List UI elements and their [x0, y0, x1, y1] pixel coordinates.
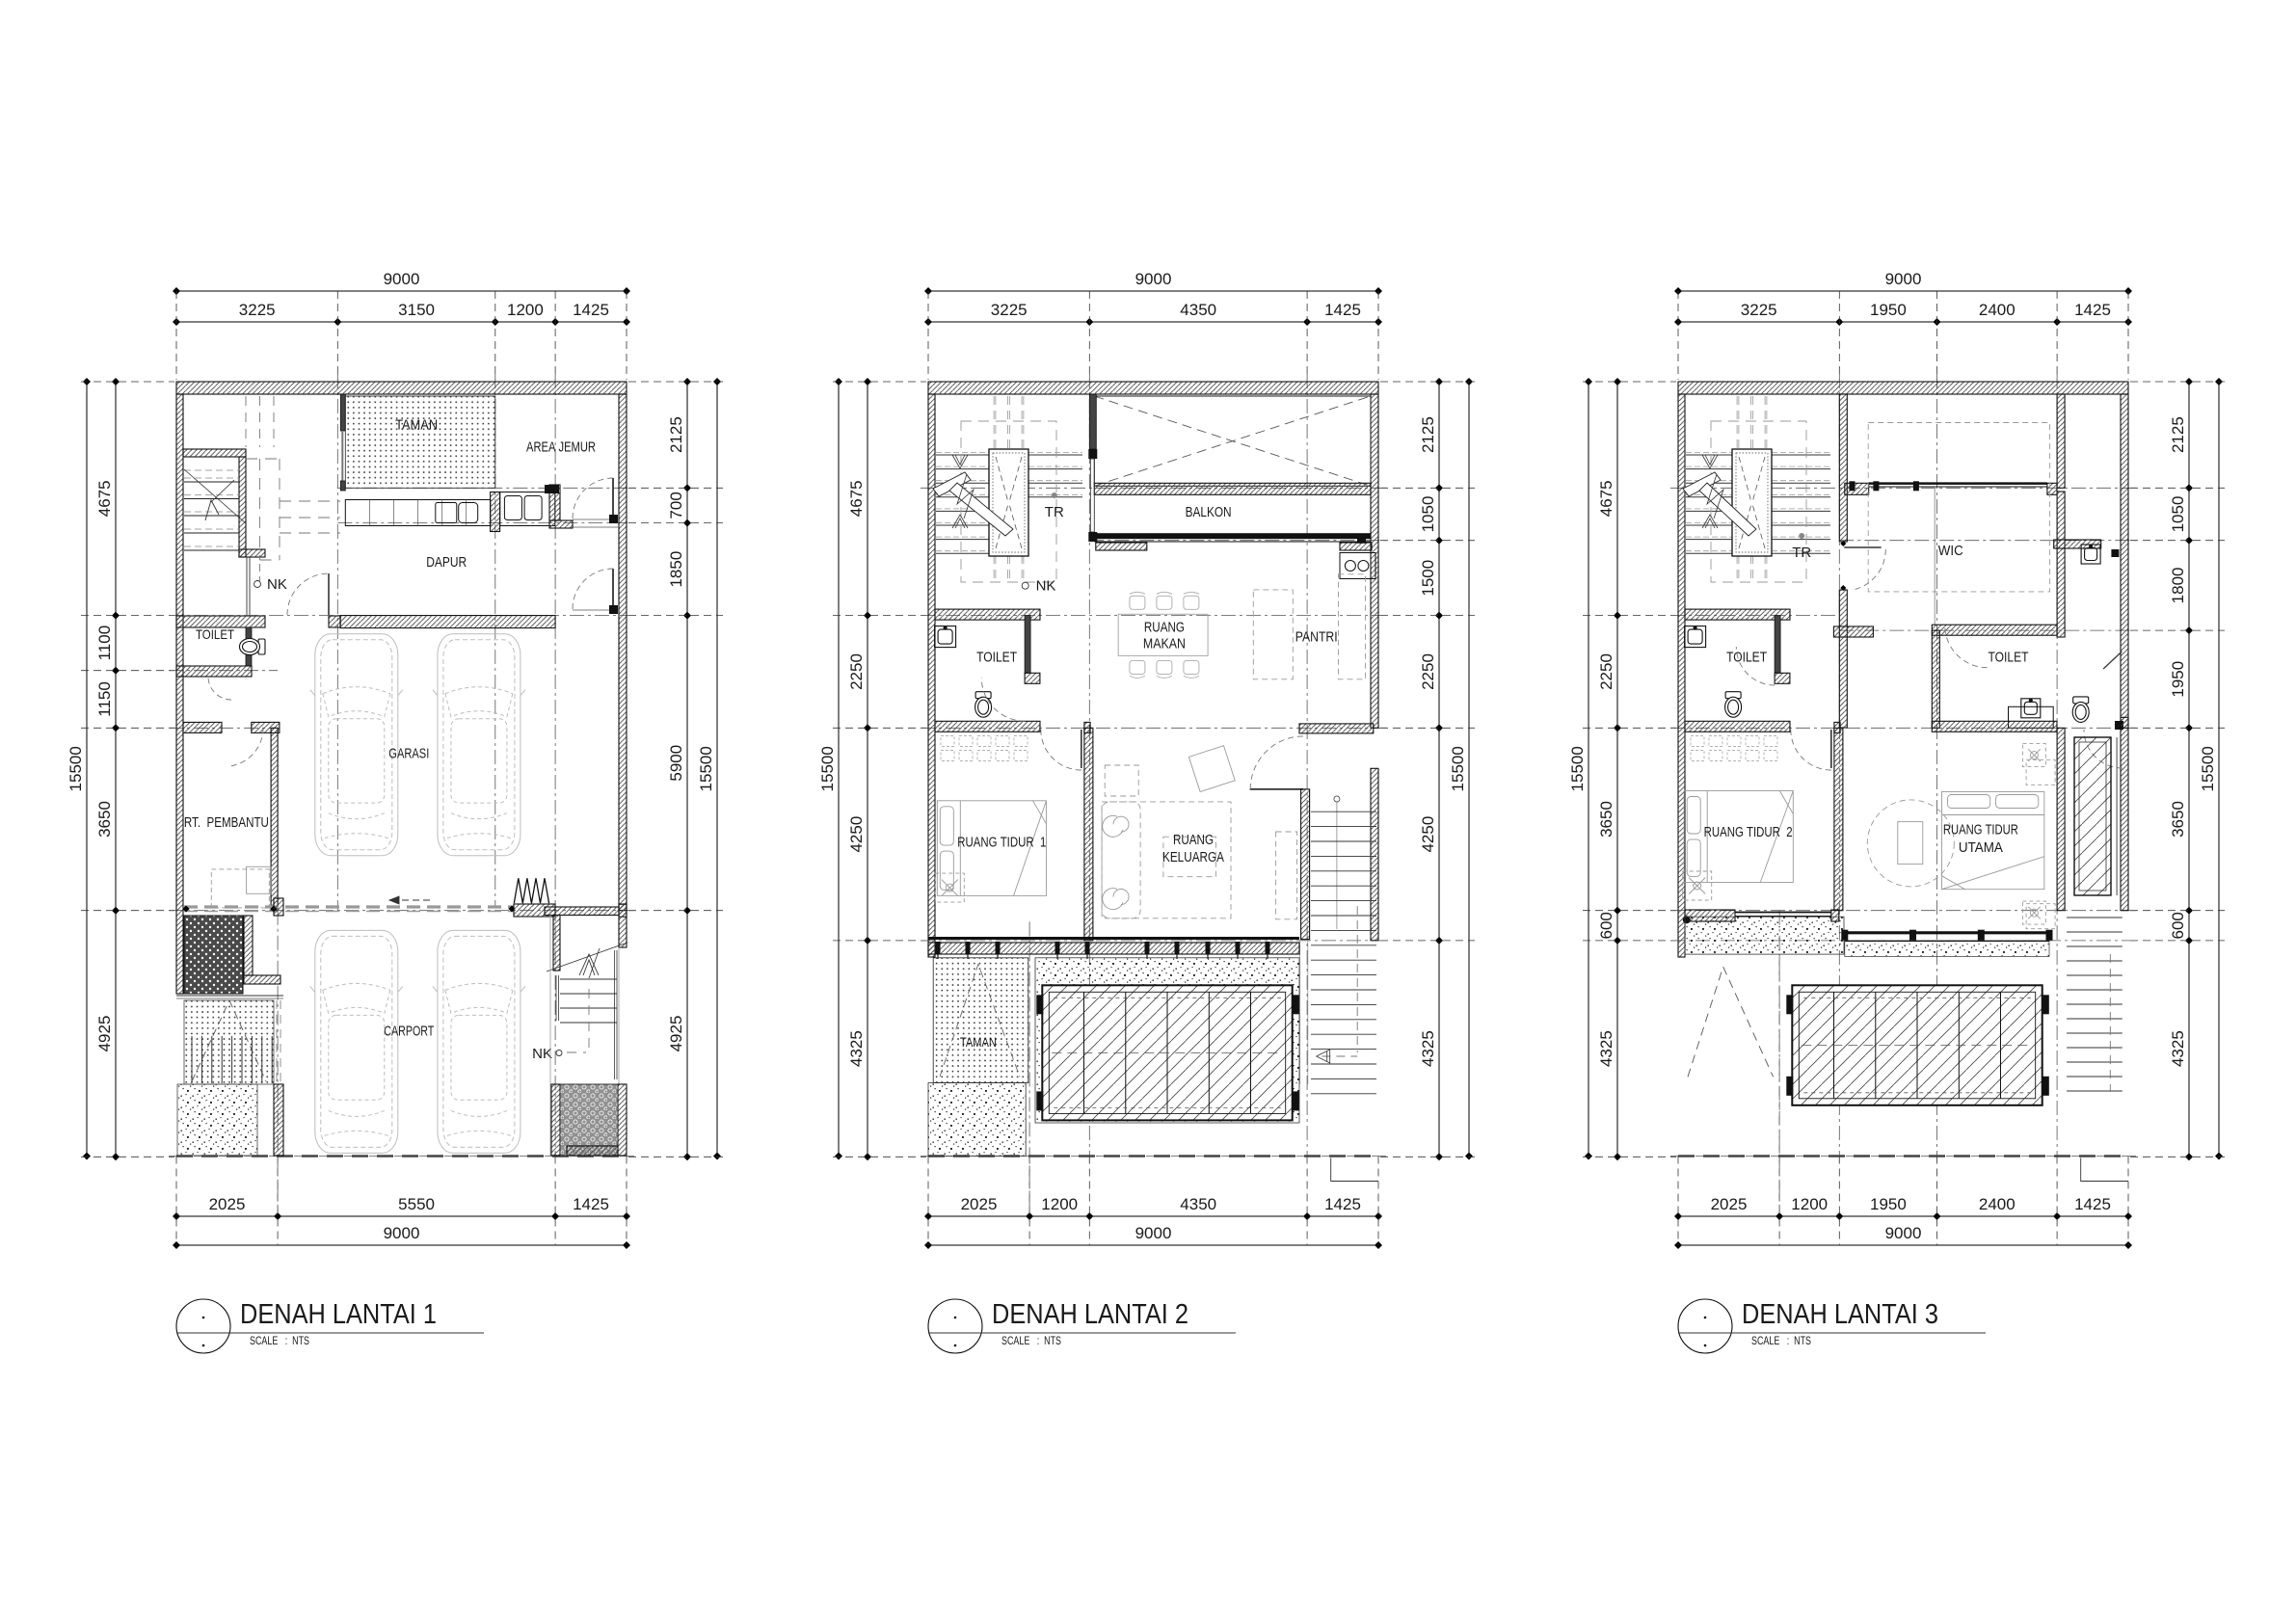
svg-text:1050: 1050 — [1419, 496, 1437, 533]
svg-text:2400: 2400 — [1979, 1195, 2016, 1213]
svg-text:1425: 1425 — [1324, 1195, 1361, 1213]
svg-text:3225: 3225 — [991, 301, 1028, 319]
svg-text:15500: 15500 — [2199, 746, 2217, 791]
svg-text:DENAH LANTAI 2: DENAH LANTAI 2 — [992, 1299, 1188, 1330]
svg-text:1850: 1850 — [667, 551, 685, 588]
svg-text:15500: 15500 — [1449, 746, 1467, 791]
svg-text:RUANG TIDUR 1: RUANG TIDUR 1 — [957, 835, 1046, 851]
svg-text:4325: 4325 — [847, 1030, 866, 1067]
svg-text:4675: 4675 — [1597, 480, 1615, 517]
svg-text:4250: 4250 — [1419, 816, 1437, 853]
svg-text:1050: 1050 — [2169, 496, 2187, 533]
svg-text:5900: 5900 — [667, 745, 685, 782]
svg-text:9000: 9000 — [1885, 1224, 1922, 1242]
svg-text:DAPUR: DAPUR — [426, 554, 467, 571]
svg-text:CARPORT: CARPORT — [384, 1024, 434, 1040]
svg-text:5550: 5550 — [398, 1195, 435, 1213]
svg-text:4350: 4350 — [1180, 1195, 1216, 1213]
svg-text:4325: 4325 — [1597, 1030, 1615, 1067]
svg-text:1950: 1950 — [2169, 661, 2187, 698]
svg-text:3650: 3650 — [95, 801, 114, 838]
svg-text:1200: 1200 — [507, 301, 544, 319]
svg-text:1950: 1950 — [1870, 1195, 1907, 1213]
svg-text:SCALE : NTS: SCALE : NTS — [1751, 1334, 1811, 1347]
svg-text:15500: 15500 — [67, 746, 85, 791]
svg-text:MAKAN: MAKAN — [1143, 636, 1186, 652]
svg-text:700: 700 — [667, 492, 685, 519]
svg-text:KELUARGA: KELUARGA — [1162, 849, 1224, 865]
svg-text:TOILET: TOILET — [1989, 650, 2029, 666]
svg-text:600: 600 — [1597, 912, 1615, 939]
svg-text:RUANG TIDUR: RUANG TIDUR — [1943, 822, 2018, 838]
svg-text:BALKON: BALKON — [1186, 504, 1232, 520]
svg-text:DENAH LANTAI 3: DENAH LANTAI 3 — [1742, 1299, 1938, 1330]
svg-text:SCALE : NTS: SCALE : NTS — [1001, 1334, 1061, 1347]
svg-text:1200: 1200 — [1041, 1195, 1078, 1213]
svg-text:15500: 15500 — [818, 746, 837, 791]
svg-text:9000: 9000 — [384, 270, 420, 288]
svg-text:TOILET: TOILET — [1726, 650, 1767, 666]
svg-text:SCALE : NTS: SCALE : NTS — [250, 1334, 309, 1347]
svg-text:2400: 2400 — [1979, 301, 2016, 319]
svg-text:2250: 2250 — [1597, 653, 1615, 690]
svg-text:TR: TR — [1045, 504, 1064, 520]
svg-text:4675: 4675 — [847, 480, 866, 517]
svg-text:2125: 2125 — [667, 416, 685, 453]
svg-text:TR: TR — [1792, 545, 1811, 561]
svg-text:NK: NK — [1036, 578, 1056, 595]
svg-text:1425: 1425 — [573, 301, 609, 319]
svg-text:3225: 3225 — [1741, 301, 1777, 319]
svg-text:2250: 2250 — [847, 653, 866, 690]
svg-text:4925: 4925 — [95, 1016, 114, 1052]
svg-text:NK: NK — [267, 576, 287, 593]
svg-text:4675: 4675 — [95, 480, 114, 517]
svg-text:1150: 1150 — [95, 681, 114, 717]
svg-text:9000: 9000 — [1135, 1224, 1172, 1242]
svg-text:AREA JEMUR: AREA JEMUR — [526, 439, 596, 456]
svg-text:2025: 2025 — [1711, 1195, 1748, 1213]
svg-text:1425: 1425 — [2074, 1195, 2111, 1213]
svg-text:9000: 9000 — [1885, 270, 1922, 288]
svg-text:15500: 15500 — [697, 746, 715, 791]
svg-text:1500: 1500 — [1419, 560, 1437, 597]
svg-text:1200: 1200 — [1791, 1195, 1828, 1213]
svg-text:3650: 3650 — [2169, 801, 2187, 838]
svg-text:GARASI: GARASI — [388, 746, 429, 762]
svg-text:3650: 3650 — [1597, 801, 1615, 838]
svg-text:TAMAN: TAMAN — [960, 1034, 997, 1050]
svg-text:600: 600 — [2169, 912, 2187, 939]
svg-text:1425: 1425 — [2074, 301, 2111, 319]
svg-text:2025: 2025 — [209, 1195, 246, 1213]
svg-text:4925: 4925 — [667, 1016, 685, 1052]
svg-text:1800: 1800 — [2169, 567, 2187, 603]
svg-text:RUANG: RUANG — [1144, 619, 1185, 635]
svg-text:PANTRI: PANTRI — [1295, 628, 1338, 645]
svg-text:9000: 9000 — [1135, 270, 1172, 288]
svg-text:3150: 3150 — [398, 301, 435, 319]
svg-text:2125: 2125 — [2169, 416, 2187, 453]
svg-text:2025: 2025 — [961, 1195, 998, 1213]
svg-text:1425: 1425 — [1324, 301, 1361, 319]
svg-text:UTAMA: UTAMA — [1959, 839, 2003, 856]
svg-text:15500: 15500 — [1568, 746, 1587, 791]
svg-text:1425: 1425 — [573, 1195, 609, 1213]
svg-text:2125: 2125 — [1419, 416, 1437, 453]
svg-text:4325: 4325 — [1419, 1030, 1437, 1067]
svg-text:4250: 4250 — [847, 816, 866, 853]
svg-text:TOILET: TOILET — [976, 650, 1017, 666]
svg-text:4350: 4350 — [1180, 301, 1216, 319]
svg-text:9000: 9000 — [384, 1224, 420, 1242]
svg-text:TOILET: TOILET — [196, 626, 234, 642]
svg-text:RUANG: RUANG — [1173, 832, 1214, 848]
svg-text:1950: 1950 — [1870, 301, 1907, 319]
svg-text:1100: 1100 — [95, 625, 114, 661]
svg-text:2250: 2250 — [1419, 653, 1437, 690]
svg-text:RUANG TIDUR 2: RUANG TIDUR 2 — [1704, 824, 1793, 840]
svg-text:TAMAN: TAMAN — [395, 416, 438, 433]
svg-text:4325: 4325 — [2169, 1030, 2187, 1067]
svg-text:3225: 3225 — [239, 301, 276, 319]
svg-text:WIC: WIC — [1938, 543, 1963, 559]
svg-text:DENAH LANTAI 1: DENAH LANTAI 1 — [240, 1299, 437, 1330]
svg-text:NK: NK — [532, 1046, 552, 1062]
svg-text:RT. PEMBANTU: RT. PEMBANTU — [184, 814, 269, 831]
